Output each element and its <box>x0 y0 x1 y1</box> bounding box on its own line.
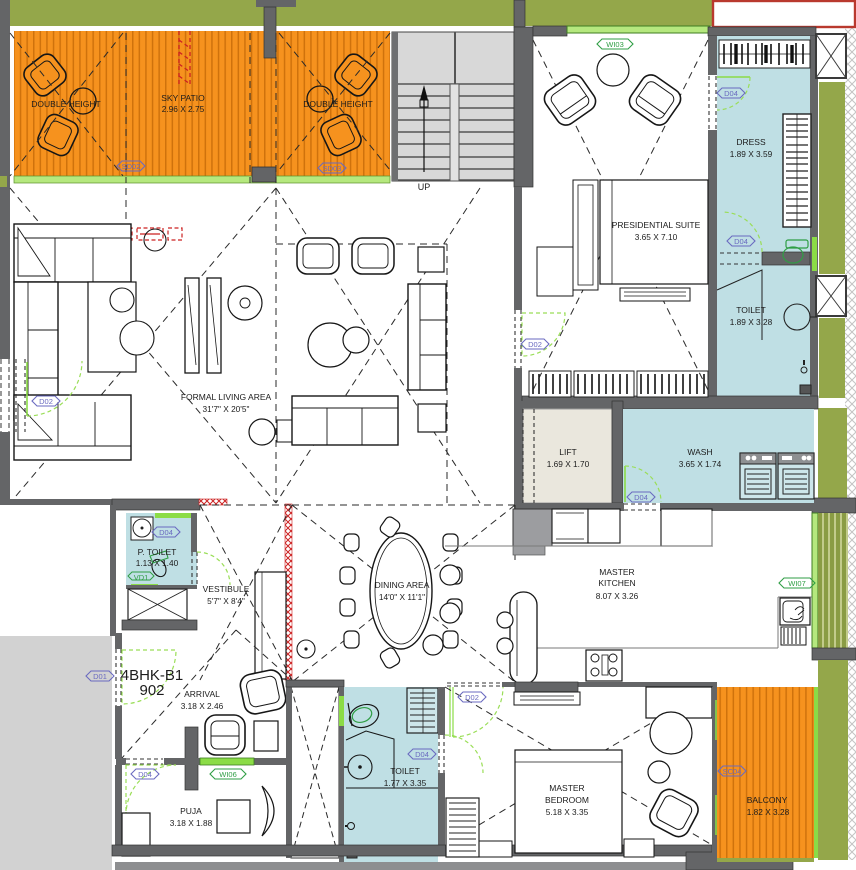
svg-text:1.89 X 3.28: 1.89 X 3.28 <box>730 317 773 327</box>
svg-text:SD03: SD03 <box>323 164 342 173</box>
svg-text:3.65 X 1.74: 3.65 X 1.74 <box>679 459 722 469</box>
svg-text:D02: D02 <box>465 693 479 702</box>
svg-text:WI06: WI06 <box>219 770 237 779</box>
svg-text:1.82 X 3.28: 1.82 X 3.28 <box>747 807 790 817</box>
svg-text:D01: D01 <box>93 672 107 681</box>
svg-text:2.96 X 2.75: 2.96 X 2.75 <box>162 104 205 114</box>
svg-text:SD02: SD02 <box>122 162 141 171</box>
svg-text:3.65 X 7.10: 3.65 X 7.10 <box>635 232 678 242</box>
svg-text:D02: D02 <box>39 397 53 406</box>
svg-text:D04: D04 <box>724 89 738 98</box>
svg-text:PUJA: PUJA <box>180 806 202 816</box>
svg-text:5.18 X 3.35: 5.18 X 3.35 <box>546 807 589 817</box>
svg-text:MASTER: MASTER <box>549 783 584 793</box>
svg-text:KITCHEN: KITCHEN <box>598 578 635 588</box>
svg-text:SKY PATIO: SKY PATIO <box>161 93 205 103</box>
svg-text:WI07: WI07 <box>788 579 806 588</box>
svg-text:D04: D04 <box>415 750 429 759</box>
svg-text:TOILET: TOILET <box>390 766 420 776</box>
svg-text:DOUBLE HEIGHT: DOUBLE HEIGHT <box>31 99 100 109</box>
svg-text:LIFT: LIFT <box>559 447 576 457</box>
svg-text:WI03: WI03 <box>606 40 624 49</box>
svg-text:31'7" X 20'5": 31'7" X 20'5" <box>203 404 250 414</box>
svg-text:P. TOILET: P. TOILET <box>138 547 177 557</box>
svg-text:ARRIVAL: ARRIVAL <box>184 689 220 699</box>
svg-text:D04: D04 <box>634 493 648 502</box>
svg-text:FORMAL LIVING AREA: FORMAL LIVING AREA <box>181 392 272 402</box>
svg-text:MASTER: MASTER <box>599 567 634 577</box>
svg-text:1.69 X 1.70: 1.69 X 1.70 <box>547 459 590 469</box>
svg-text:D02: D02 <box>528 340 542 349</box>
svg-text:3.18 X 1.88: 3.18 X 1.88 <box>170 818 213 828</box>
svg-text:BEDROOM: BEDROOM <box>545 795 589 805</box>
svg-text:1.77 X 3.35: 1.77 X 3.35 <box>384 778 427 788</box>
svg-text:WASH: WASH <box>687 447 712 457</box>
svg-text:TOILET: TOILET <box>736 305 766 315</box>
svg-text:SC04: SC04 <box>723 767 742 776</box>
svg-text:D04: D04 <box>159 528 173 537</box>
svg-text:VESTIBULE: VESTIBULE <box>203 584 250 594</box>
svg-text:DRESS: DRESS <box>736 137 766 147</box>
svg-text:VD1: VD1 <box>134 573 149 582</box>
svg-text:8.07 X 3.26: 8.07 X 3.26 <box>596 591 639 601</box>
svg-text:3.18 X 2.46: 3.18 X 2.46 <box>181 701 224 711</box>
svg-text:UP: UP <box>418 182 431 192</box>
svg-text:BALCONY: BALCONY <box>747 795 788 805</box>
svg-text:DINING AREA: DINING AREA <box>375 580 430 590</box>
svg-text:5'7" X 8'4": 5'7" X 8'4" <box>207 596 245 606</box>
svg-text:D04: D04 <box>734 237 748 246</box>
svg-text:14'0" X 11'1": 14'0" X 11'1" <box>379 592 425 602</box>
svg-text:1.89 X 3.59: 1.89 X 3.59 <box>730 149 773 159</box>
svg-text:D04: D04 <box>138 770 152 779</box>
svg-text:DOUBLE HEIGHT: DOUBLE HEIGHT <box>303 99 372 109</box>
svg-text:1.13 X 1.40: 1.13 X 1.40 <box>136 558 179 568</box>
svg-text:902: 902 <box>139 682 164 699</box>
svg-text:PRESIDENTIAL SUITE: PRESIDENTIAL SUITE <box>612 220 701 230</box>
